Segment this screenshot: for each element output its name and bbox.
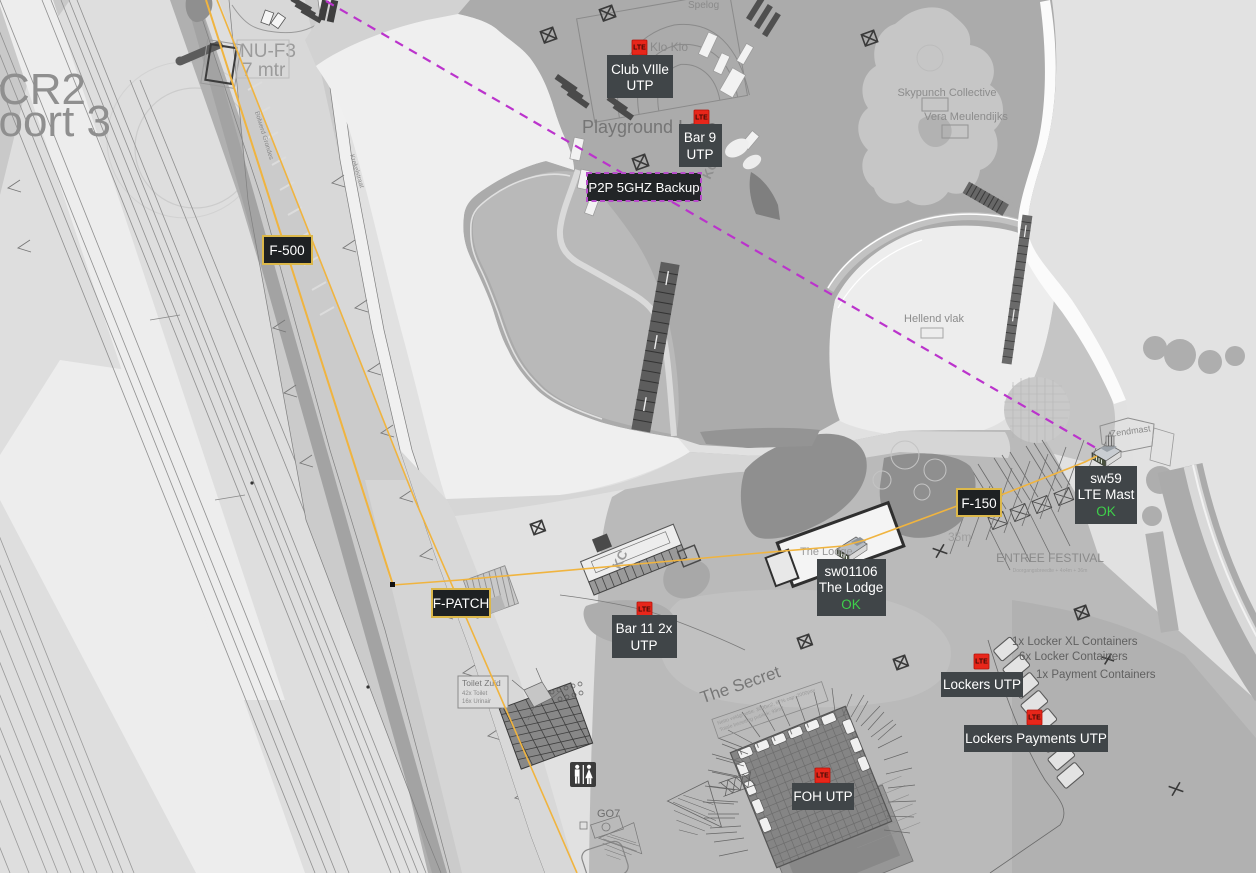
svg-text:poort 3: poort 3 [0,97,111,146]
svg-text:16x Urinair: 16x Urinair [462,699,491,705]
svg-text:Klo Klo: Klo Klo [650,40,688,54]
svg-text:OK: OK [841,597,861,612]
svg-text:LTE: LTE [816,773,829,780]
svg-text:1x Locker XL Containers: 1x Locker XL Containers [1012,636,1138,648]
svg-text:F-150: F-150 [961,496,996,511]
svg-text:UTP: UTP [627,78,654,93]
svg-text:Skypunch Collective: Skypunch Collective [897,87,996,99]
svg-text:OK: OK [1096,504,1116,519]
svg-text:6x Locker Containers: 6x Locker Containers [1019,651,1128,663]
svg-text:LTE: LTE [633,45,646,52]
svg-text:Doorgangsbreedte + 4x4m + 36m: Doorgangsbreedte + 4x4m + 36m [1013,568,1088,574]
svg-text:Lockers Payments UTP: Lockers Payments UTP [965,731,1107,746]
svg-text:F-PATCH: F-PATCH [433,596,490,611]
svg-text:35m: 35m [948,530,971,544]
svg-text:1x Payment Containers: 1x Payment Containers [1036,669,1156,681]
svg-text:LTE Mast: LTE Mast [1078,487,1135,502]
svg-text:LTE: LTE [695,115,708,122]
svg-text:Vera Meulendijks: Vera Meulendijks [924,111,1008,123]
svg-text:F-500: F-500 [269,243,304,258]
svg-text:LTE: LTE [975,659,988,666]
svg-text:UTP: UTP [687,147,714,162]
svg-text:NU-F3: NU-F3 [240,41,296,62]
svg-text:Bar 11 2x: Bar 11 2x [616,621,673,636]
svg-text:sw59: sw59 [1090,471,1122,486]
svg-text:LTE: LTE [638,607,651,614]
svg-text:Club VIlle: Club VIlle [611,62,669,77]
svg-text:42x Toilet: 42x Toilet [462,691,488,697]
svg-text:FOH UTP: FOH UTP [793,789,852,804]
svg-text:ENTREE FESTIVAL: ENTREE FESTIVAL [996,551,1104,565]
svg-text:Hellend vlak: Hellend vlak [904,313,964,325]
svg-text:P2P 5GHZ Backup: P2P 5GHZ Backup [588,180,699,195]
svg-text:sw01106: sw01106 [824,564,877,579]
svg-text:The Lodge: The Lodge [819,580,884,595]
svg-text:UTP: UTP [631,638,658,653]
svg-text:GO7: GO7 [597,808,620,820]
svg-text:Bar 9: Bar 9 [684,130,716,145]
svg-text:Spelog: Spelog [688,0,719,11]
svg-text:Lockers UTP: Lockers UTP [943,677,1021,692]
svg-text:LTE: LTE [1028,715,1041,722]
